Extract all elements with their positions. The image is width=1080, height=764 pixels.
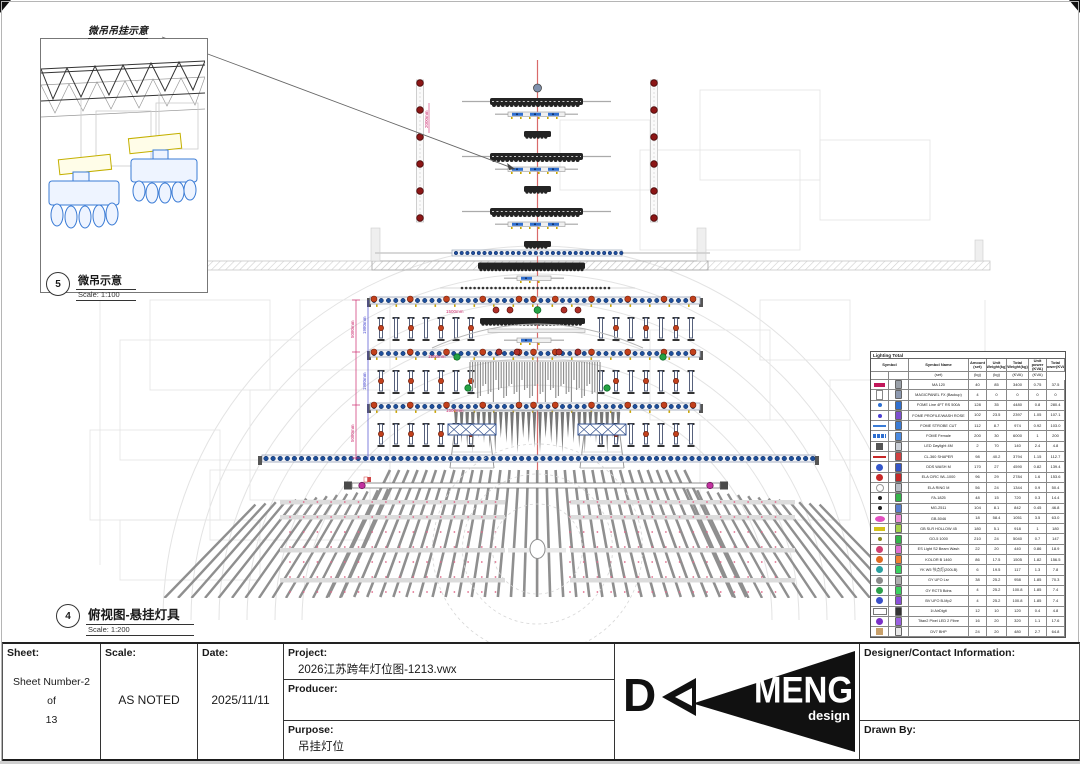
legend-cell: 1.6 <box>1029 473 1047 483</box>
legend-cell: 1.85 <box>1029 596 1047 606</box>
legend-cell <box>889 442 909 452</box>
detail-view-label: 微吊吊挂示意 <box>88 22 148 39</box>
legend-cell <box>871 380 889 390</box>
legend-cell: 0.82 <box>1029 462 1047 472</box>
legend-cell: 4.8 <box>1047 442 1065 452</box>
legend-cell: BV UFO B-Mp2 <box>909 596 969 606</box>
dim-label: 2000mm <box>424 110 429 128</box>
legend-cell <box>889 504 909 514</box>
legend-cell: 50.4 <box>1047 483 1065 493</box>
dim-label: 1500mm <box>446 309 464 314</box>
legend-cell <box>871 372 889 380</box>
legend-symbol-3d <box>895 607 902 616</box>
legend-cell: GO-5 1000 <box>909 534 969 544</box>
legend-cell: FOME STROBE CUT <box>909 421 969 431</box>
project-label: Project: <box>284 644 614 659</box>
legend-cell: ELA CIRC WL-1000 <box>909 473 969 483</box>
producer-label: Producer: <box>284 680 614 695</box>
legend-cell: 974 <box>1007 421 1029 431</box>
legend-cell: 0.7 <box>1029 534 1047 544</box>
legend-cell: 1.15 <box>1029 452 1047 462</box>
legend-cell: 280.4 <box>1047 401 1065 411</box>
legend-cell: 1.05 <box>1029 411 1047 421</box>
callout-number: 5 <box>46 272 70 296</box>
project-value: 2026江苏跨年灯位图-1213.vwx <box>284 659 614 677</box>
legend-cell: Amount (set) <box>969 359 987 372</box>
legend-cell <box>871 555 889 565</box>
legend-row: DDS WASH M1702745900.82139.4 <box>871 462 1065 472</box>
legend-cell: 320 <box>1007 617 1029 627</box>
legend-symbol-3d <box>895 545 902 554</box>
legend-symbol-2d <box>876 587 883 594</box>
legend-cell <box>871 421 889 431</box>
legend-cell: FOME Female <box>909 431 969 441</box>
legend-cell: 6 <box>969 565 987 575</box>
sheet-cell: Sheet: Sheet Number-2 of 13 <box>3 644 101 759</box>
dameng-design-logo: D MENG design <box>615 644 859 759</box>
legend-cell: 156.5 <box>1047 555 1065 565</box>
dim-label: 1980mm <box>362 372 367 390</box>
legend-cell: 1.3 <box>1029 565 1047 575</box>
legend-cell <box>871 586 889 596</box>
legend-cell <box>889 617 909 627</box>
legend-cell: 128 <box>969 401 987 411</box>
legend-symbol-2d <box>878 496 882 500</box>
legend-cell: 140 <box>1007 442 1029 452</box>
legend-cell <box>889 565 909 575</box>
legend-symbol-2d <box>878 506 882 510</box>
legend-cell: 0.92 <box>1029 421 1047 431</box>
legend-row: GY UFO Lsr3825.29581.8570.3 <box>871 576 1065 586</box>
legend-cell: 117 <box>1007 565 1029 575</box>
legend-title: Lighting Total <box>871 352 1065 359</box>
legend-cell: 20 <box>987 627 1007 637</box>
legend-symbol-3d <box>895 493 902 502</box>
legend-symbol-3d <box>895 432 902 441</box>
legend-cell: 27 <box>987 462 1007 472</box>
legend-cell: 48 <box>969 493 987 503</box>
scale-value: AS NOTED <box>101 693 197 707</box>
legend-row: FOME PROFILE/WASH ROSE10223.523971.05107… <box>871 411 1065 421</box>
legend-row: ELA CIRC WL-1000962927841.6153.6 <box>871 473 1065 483</box>
legend-row: FOME STROBE CUT1128.79740.92103.0 <box>871 421 1065 431</box>
legend-row: FOME Line 4FT RS 500A1283544800.8280.4 <box>871 401 1065 411</box>
legend-symbol-3d <box>895 411 902 420</box>
dim-label: 1980mm <box>362 316 367 334</box>
legend-cell: 96 <box>969 473 987 483</box>
legend-cell <box>871 401 889 411</box>
legend-symbol-2d <box>876 556 883 563</box>
legend-symbol-3d <box>895 421 902 430</box>
legend-cell: 38 <box>969 576 987 586</box>
legend-cell: 180 <box>1047 524 1065 534</box>
legend-cell: 720 <box>1007 493 1029 503</box>
legend-symbol-2d <box>873 434 886 438</box>
producer-value <box>284 695 614 697</box>
legend-cell: 200 <box>1047 431 1065 441</box>
legend-cell <box>871 534 889 544</box>
legend-cell: MA 120 <box>909 380 969 390</box>
legend-symbol-2d <box>876 597 883 604</box>
legend-cell: 4 <box>969 586 987 596</box>
legend-cell: FOME Line 4FT RS 500A <box>909 401 969 411</box>
legend-cell <box>889 380 909 390</box>
legend-row: DV7 BHP24204802.764.8 <box>871 627 1065 637</box>
legend-symbol-2d <box>875 516 885 522</box>
legend-symbol-2d <box>876 474 883 481</box>
legend-row: ELA RING M562413440.950.4 <box>871 483 1065 493</box>
legend-cell <box>889 586 909 596</box>
legend-cell: 102 <box>969 411 987 421</box>
legend-cell: 40.2 <box>987 452 1007 462</box>
legend-cell: KOLOR B 1460 <box>909 555 969 565</box>
legend-symbol-3d <box>895 524 902 533</box>
legend-cell: 0.3 <box>1029 493 1047 503</box>
scale-cell: Scale: AS NOTED <box>101 644 198 759</box>
legend-symbol-2d <box>874 527 885 531</box>
legend-symbol-3d <box>895 535 902 544</box>
legend-cell: LED Daylight 4M <box>909 442 969 452</box>
logo-letter-d: D <box>623 672 654 718</box>
legend-cell: 58.4 <box>987 514 1007 524</box>
legend-cell: 20 <box>987 617 1007 627</box>
legend-cell: 2 <box>969 442 987 452</box>
legend-cell <box>889 411 909 421</box>
legend-cell: Symbol Name <box>909 359 969 372</box>
legend-symbol-2d <box>876 546 883 553</box>
legend-row: MA 120408534000.7537.5 <box>871 380 1065 390</box>
legend-cell: 25.2 <box>987 576 1007 586</box>
legend-cell <box>871 524 889 534</box>
legend-cell: 4.8 <box>1047 607 1065 617</box>
legend-symbol-2d <box>876 390 883 400</box>
logo-cell: D MENG design <box>615 644 860 759</box>
legend-symbol-2d <box>873 456 886 458</box>
legend-cell: 0.4 <box>1029 607 1047 617</box>
legend-cell: Total Weight(kg) <box>1007 359 1029 372</box>
legend-cell <box>889 596 909 606</box>
legend-cell <box>871 596 889 606</box>
legend-cell: 4590 <box>1007 462 1029 472</box>
purpose-cell: Purpose: 吊挂灯位 <box>284 721 615 759</box>
legend-cell: ELA RING M <box>909 483 969 493</box>
legend-symbol-2d <box>878 403 882 407</box>
legend-row: GY RCT5 Bdns425.2100.81.857.4 <box>871 586 1065 596</box>
legend-cell: 24 <box>987 483 1007 493</box>
legend-cell <box>889 607 909 617</box>
legend-cell: YK W5 节点灯(200LB) <box>909 565 969 575</box>
legend-cell: 112.7 <box>1047 452 1065 462</box>
detail-view-callout: 5 微吊示意 Scale: 1:100 <box>46 272 136 301</box>
legend-cell <box>889 462 909 472</box>
legend-cell: 200 <box>969 431 987 441</box>
title-block: Sheet: Sheet Number-2 of 13 Scale: AS NO… <box>2 642 1080 762</box>
legend-cell: 18 <box>969 514 987 524</box>
legend-symbol-3d <box>895 442 902 451</box>
legend-cell: 7.4 <box>1047 586 1065 596</box>
legend-cell: 1505 <box>1007 555 1029 565</box>
project-cell: Project: 2026江苏跨年灯位图-1213.vwx <box>284 644 615 680</box>
legend-symbol-3d <box>895 586 902 595</box>
legend-cell: 4 <box>969 390 987 400</box>
legend-cell: 958 <box>1007 576 1029 586</box>
legend-cell: 2397 <box>1007 411 1029 421</box>
logo-subtext: design <box>808 708 850 723</box>
legend-row: GO-5 10002102450400.7147 <box>871 534 1065 544</box>
detail-view-title: 微吊示意 <box>76 272 136 290</box>
legend-cell: 25.2 <box>987 586 1007 596</box>
legend-symbol-3d <box>895 555 902 564</box>
drawn-by-value <box>860 736 1079 738</box>
designer-cell: Designer/Contact Information: <box>860 644 1079 721</box>
legend-cell: 1.85 <box>1029 586 1047 596</box>
legend-cell <box>871 607 889 617</box>
legend-cell <box>889 372 909 380</box>
legend-symbol-3d <box>895 627 902 636</box>
legend-cell: 112 <box>969 421 987 431</box>
legend-cell: 100.8 <box>1007 586 1029 596</box>
legend-cell: 0.8 <box>1029 401 1047 411</box>
legend-cell: 22 <box>969 545 987 555</box>
legend-cell: 7.4 <box>1047 596 1065 606</box>
legend-row: ES Light S2 Beam Wash22204400.8618.9 <box>871 545 1065 555</box>
plan-view-callout: 4 俯视图-悬挂灯具 Scale: 1:200 <box>56 604 194 636</box>
legend-cell: (KVA) <box>1029 372 1047 380</box>
legend-cell: 170 <box>969 462 987 472</box>
dim-label: 1500mm <box>446 408 464 413</box>
legend-cell: 4 <box>969 596 987 606</box>
date-value: 2025/11/11 <box>198 693 283 707</box>
legend-row: BV UFO B-Mp2425.2100.81.857.4 <box>871 596 1065 606</box>
legend-cell <box>871 473 889 483</box>
legend-cell <box>871 431 889 441</box>
legend-rows: SymbolSymbol NameAmount (set)Unit Weight… <box>871 359 1065 637</box>
legend-cell: 86 <box>969 555 987 565</box>
legend-symbol-3d <box>895 617 902 626</box>
legend-cell: 0.9 <box>1029 483 1047 493</box>
legend-cell: Unit power (KVA) <box>1029 359 1047 372</box>
legend-cell: 104 <box>969 504 987 514</box>
detail-sketch <box>41 39 205 290</box>
legend-cell: (kg) <box>969 372 987 380</box>
legend-row: FA-182548157200.314.4 <box>871 493 1065 503</box>
plan-view-title: 俯视图-悬挂灯具 <box>86 604 194 625</box>
legend-cell <box>889 473 909 483</box>
legend-symbol-2d <box>876 566 883 573</box>
drawing-sheet: 5080mm 5080mm 1980mm 1980mm 2000mm 1500m… <box>0 0 1080 764</box>
legend-cell <box>871 504 889 514</box>
legend-row: YK W5 节点灯(200LB)619.51171.37.8 <box>871 565 1065 575</box>
legend-cell <box>889 421 909 431</box>
legend-symbol-2d <box>873 608 887 615</box>
legend-cell <box>889 524 909 534</box>
dim-label: 5080mm <box>350 424 355 442</box>
legend-cell: DDS WASH M <box>909 462 969 472</box>
legend-cell: 30 <box>987 431 1007 441</box>
legend-cell: 6000 <box>1007 431 1029 441</box>
legend-cell: (kg) <box>987 372 1007 380</box>
legend-cell: Symbol <box>871 359 909 372</box>
legend-cell: GY RCT5 Bdns <box>909 586 969 596</box>
legend-row: Titan2 Pixel LED 2 Fibre16203201.117.6 <box>871 617 1065 627</box>
legend-cell: ES Light S2 Beam Wash <box>909 545 969 555</box>
legend-cell: 0.45 <box>1029 504 1047 514</box>
legend-row: KOLOR B 14608617.515051.82156.5 <box>871 555 1065 565</box>
legend-cell: DV7 BHP <box>909 627 969 637</box>
legend-cell: 139.4 <box>1047 462 1065 472</box>
legend-cell: Unit Weight(kg) <box>987 359 1007 372</box>
legend-cell: 3794 <box>1007 452 1029 462</box>
sheet-label: Sheet: <box>3 644 100 659</box>
legend-cell: 3400 <box>1007 380 1029 390</box>
producer-cell: Producer: <box>284 680 615 721</box>
legend-symbol-3d <box>895 380 902 389</box>
legend-cell <box>871 545 889 555</box>
legend-symbol-2d <box>873 425 886 427</box>
legend-cell: 1 <box>1029 431 1047 441</box>
legend-cell: 210 <box>969 534 987 544</box>
legend-cell: GY UFO Lsr <box>909 576 969 586</box>
dim-label: 5080mm <box>350 320 355 338</box>
legend-cell: 35 <box>987 401 1007 411</box>
legend-cell: 17.5 <box>987 555 1007 565</box>
drawn-by-label: Drawn By: <box>860 721 1079 736</box>
legend-cell: 0 <box>1047 390 1065 400</box>
logo-wordmark: MENG <box>754 669 853 712</box>
designer-value <box>860 659 1079 661</box>
legend-cell: 70.3 <box>1047 576 1065 586</box>
legend-cell: GB-5046 <box>909 514 969 524</box>
legend-cell <box>871 493 889 503</box>
legend-cell: 18.9 <box>1047 545 1065 555</box>
dim-label: 1500mm <box>428 354 446 359</box>
date-label: Date: <box>198 644 283 659</box>
legend-symbol-2d <box>876 484 884 492</box>
logo-letter-a-triangle <box>662 678 696 716</box>
legend-symbol-2d <box>876 443 883 450</box>
legend-cell: 918 <box>1007 524 1029 534</box>
legend-cell: 15 <box>987 493 1007 503</box>
legend-cell <box>871 442 889 452</box>
legend-cell: 103.0 <box>1047 421 1065 431</box>
legend-cell: 0.86 <box>1029 545 1047 555</box>
legend-row: SymbolSymbol NameAmount (set)Unit Weight… <box>871 359 1065 372</box>
legend-cell <box>889 431 909 441</box>
legend-cell <box>871 617 889 627</box>
legend-symbol-3d <box>895 514 902 523</box>
legend-cell: 63.0 <box>1047 514 1065 524</box>
legend-symbol-2d <box>878 414 882 418</box>
legend-cell: GB SLR HOLLOW 45 <box>909 524 969 534</box>
legend-cell: 85 <box>987 380 1007 390</box>
legend-cell: 2.7 <box>1029 627 1047 637</box>
legend-cell: 0 <box>987 390 1007 400</box>
legend-symbol-2d <box>876 464 883 471</box>
legend-cell: 98 <box>969 452 987 462</box>
legend-cell: 12 <box>969 607 987 617</box>
legend-cell: 40 <box>969 380 987 390</box>
legend-symbol-2d <box>878 537 882 541</box>
scale-label: Scale: <box>101 644 197 659</box>
designer-label: Designer/Contact Information: <box>860 644 1079 659</box>
legend-symbol-3d <box>895 401 902 410</box>
legend-cell <box>889 514 909 524</box>
legend-symbol-2d <box>874 383 885 387</box>
legend-cell: 56 <box>969 483 987 493</box>
legend-cell <box>889 545 909 555</box>
legend-cell: 5.1 <box>987 524 1007 534</box>
sheet-total: 13 <box>46 714 58 726</box>
legend-symbol-3d <box>895 473 902 482</box>
legend-cell: Titan2 Pixel LED 2 Fibre <box>909 617 969 627</box>
legend-cell: 480 <box>1007 627 1029 637</box>
legend-cell <box>871 411 889 421</box>
legend-cell <box>889 452 909 462</box>
legend-symbol-3d <box>895 596 902 605</box>
legend-row: CL-360 SHAPER9840.237941.15112.7 <box>871 452 1065 462</box>
legend-cell: FOME PROFILE/WASH ROSE <box>909 411 969 421</box>
legend-cell: 20 <box>987 545 1007 555</box>
legend-cell: 19.5 <box>987 565 1007 575</box>
plan-view-scale: Scale: 1:200 <box>86 625 194 636</box>
legend-row: MG-25111048.18420.4546.8 <box>871 504 1065 514</box>
legend-cell <box>871 565 889 575</box>
legend-cell: 2.4 <box>1029 442 1047 452</box>
legend-cell: 17.6 <box>1047 617 1065 627</box>
legend-cell: 23.5 <box>987 411 1007 421</box>
legend-cell: 100.8 <box>1007 596 1029 606</box>
legend-row: LED Daylight 4M2701402.44.8 <box>871 442 1065 452</box>
legend-cell: 0 <box>1029 390 1047 400</box>
legend-cell: 70 <box>987 442 1007 452</box>
detail-view-scale: Scale: 1:100 <box>76 290 136 301</box>
legend-cell: 46.8 <box>1047 504 1065 514</box>
legend-cell: 29 <box>987 473 1007 483</box>
detail-view-box <box>40 38 208 293</box>
legend-cell <box>889 390 909 400</box>
legend-cell: 153.6 <box>1047 473 1065 483</box>
legend-cell: 842 <box>1007 504 1029 514</box>
legend-cell: 2784 <box>1007 473 1029 483</box>
legend-row: 1t AirDigit12101200.44.8 <box>871 607 1065 617</box>
legend-symbol-2d <box>876 628 883 635</box>
legend-cell: Total power(KVA) <box>1047 359 1065 372</box>
legend-cell: 14.4 <box>1047 493 1065 503</box>
legend-cell: 24 <box>969 627 987 637</box>
legend-symbol-3d <box>895 483 902 492</box>
legend-cell: 147 <box>1047 534 1065 544</box>
legend-cell: 3.5 <box>1029 514 1047 524</box>
legend-cell: 10 <box>987 607 1007 617</box>
legend-cell <box>889 401 909 411</box>
legend-symbol-3d <box>895 463 902 472</box>
legend-symbol-3d <box>895 576 902 585</box>
legend-cell: 120 <box>1007 607 1029 617</box>
callout-number: 4 <box>56 604 80 628</box>
legend-cell: 5040 <box>1007 534 1029 544</box>
legend-cell: 4480 <box>1007 401 1029 411</box>
legend-cell <box>889 534 909 544</box>
purpose-value: 吊挂灯位 <box>284 736 614 754</box>
sheet-of: of <box>47 695 56 707</box>
legend-cell: 180 <box>969 524 987 534</box>
legend-row: (set)(kg)(kg)(KVA)(KVA) <box>871 372 1065 380</box>
legend-cell: 7.8 <box>1047 565 1065 575</box>
legend-cell: 1 <box>1029 524 1047 534</box>
legend-cell: CL-360 SHAPER <box>909 452 969 462</box>
date-cell: Date: 2025/11/11 <box>198 644 284 759</box>
legend-cell <box>871 462 889 472</box>
